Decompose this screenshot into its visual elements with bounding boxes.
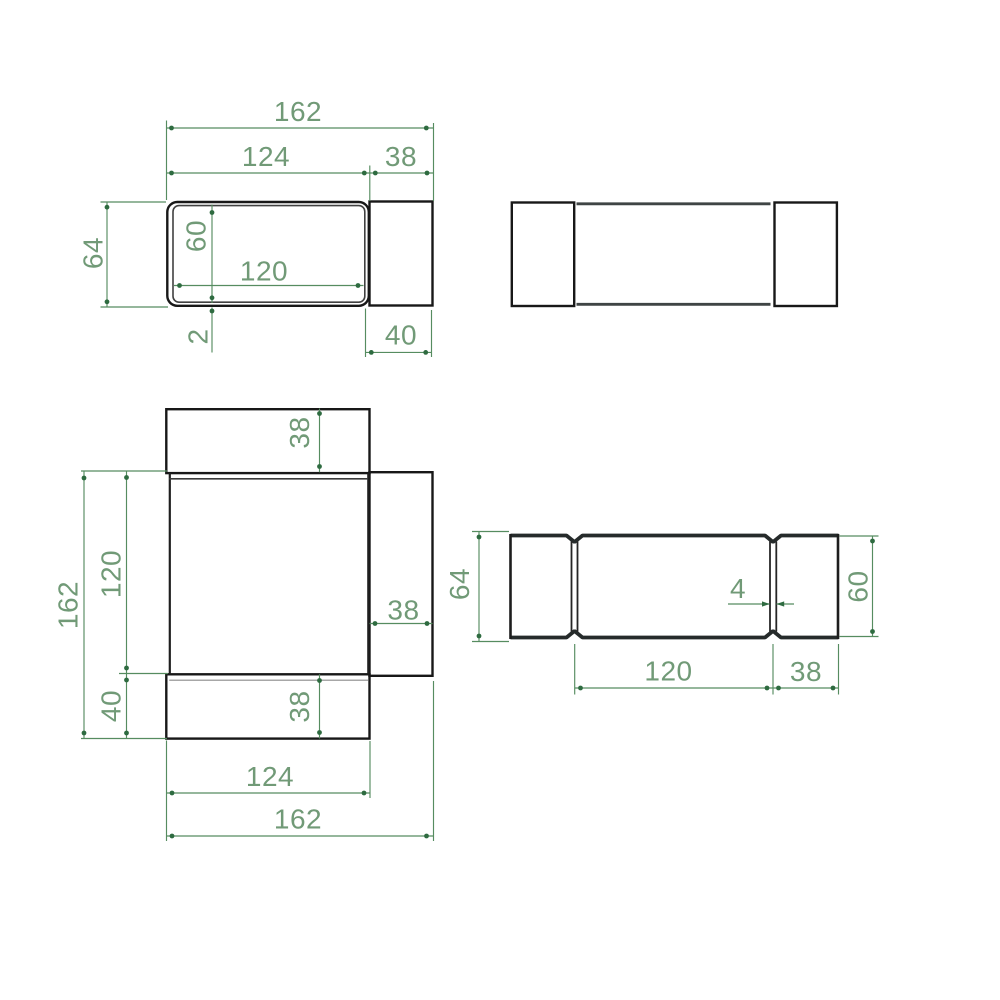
svg-text:38: 38	[284, 416, 315, 448]
svg-text:120: 120	[240, 256, 288, 287]
svg-text:162: 162	[53, 581, 84, 629]
svg-text:120: 120	[644, 656, 692, 687]
svg-text:162: 162	[274, 804, 322, 835]
svg-text:162: 162	[274, 96, 322, 127]
svg-text:38: 38	[790, 656, 822, 687]
svg-text:64: 64	[444, 568, 475, 600]
svg-text:38: 38	[387, 595, 419, 626]
svg-text:38: 38	[385, 141, 417, 172]
svg-text:40: 40	[96, 690, 127, 722]
svg-text:64: 64	[78, 237, 109, 269]
svg-text:60: 60	[181, 220, 212, 252]
svg-text:2: 2	[183, 328, 214, 344]
svg-text:60: 60	[843, 570, 874, 602]
svg-text:4: 4	[730, 573, 746, 604]
svg-text:40: 40	[385, 320, 417, 351]
svg-text:38: 38	[284, 690, 315, 722]
svg-text:124: 124	[246, 761, 294, 792]
svg-text:124: 124	[242, 141, 290, 172]
svg-text:120: 120	[96, 550, 127, 598]
